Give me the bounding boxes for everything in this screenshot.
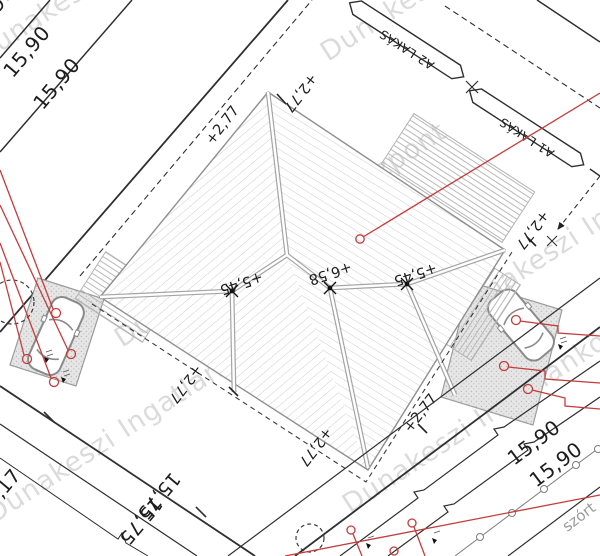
plot-dim-nw: 15,90 [28,53,85,114]
eave-height-label: +2,77 [280,70,320,115]
site-plan-drawing: Dunakeszi Ingatlanközpont Dunakeszi Inga… [0,0,600,556]
site-plan-page: Dunakeszi Ingatlanközpont Dunakeszi Inga… [0,0,600,556]
setback-line-ne [445,6,600,108]
street-surface-label: szórt [559,499,599,536]
